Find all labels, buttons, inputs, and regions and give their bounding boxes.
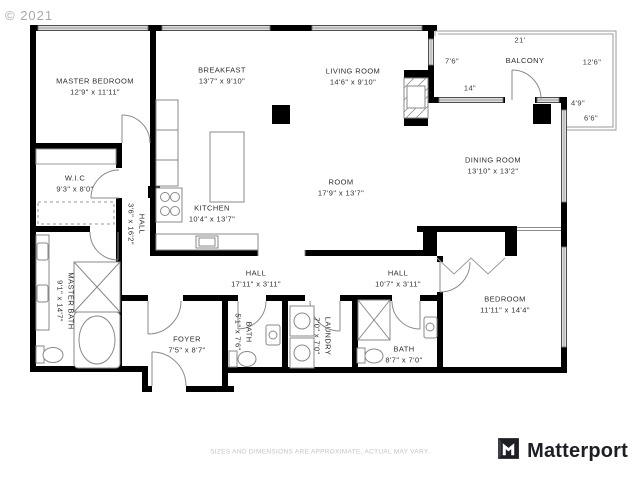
kitchen-island: [210, 132, 244, 202]
floorplan-page: MASTER BEDROOM12'9" x 11'11" BREAKFAST13…: [0, 0, 640, 480]
entry-door: [152, 352, 186, 386]
matterport-logo-icon: [496, 436, 521, 466]
room-label-foyer: FOYER7'5" x 8'7": [168, 335, 205, 356]
master-bath-fixtures: [36, 235, 120, 368]
room-label-master-bath: MASTER BATH9'1" x 14'7": [55, 272, 76, 329]
room-label-master-bedroom: MASTER BEDROOM12'9" x 11'11": [56, 77, 134, 98]
room-label-balcony: BALCONY: [506, 56, 545, 67]
matterport-logo-text: Matterport: [527, 440, 628, 463]
room-label-living-room: LIVING ROOM14'6" x 9'10": [326, 67, 380, 88]
copyright-watermark: © 2021: [5, 8, 53, 23]
laundry-fixtures: [290, 306, 314, 368]
column: [272, 105, 290, 124]
room-label-bedroom: BEDROOM11'11" x 14'4": [480, 295, 530, 316]
toilet-tank: [229, 351, 237, 367]
disclaimer-text: SIZES AND DIMENSIONS ARE APPROXIMATE, AC…: [210, 449, 430, 456]
room-label-kitchen: KITCHEN10'4" x 13'7": [189, 204, 235, 225]
dim-balcony-window: 14": [464, 84, 476, 93]
kitchen-counter: [156, 100, 178, 186]
kitchen-fixtures: [156, 100, 258, 250]
room-label-hall-east: HALL10'7" x 3'11": [375, 269, 421, 290]
wic-door: [91, 170, 119, 198]
toilet: [365, 349, 383, 363]
room-label-laundry: LAUNDRY7'0" x 7'0": [312, 317, 333, 356]
room-label-dining-room: DINING ROOM13'10" x 13'2": [465, 156, 521, 177]
sink: [37, 243, 48, 260]
room-label-bath2: BATH8'7" x 7'0": [385, 345, 422, 366]
closet-bifold-doors: [437, 258, 505, 274]
balcony-door: [512, 70, 541, 100]
room-label-room: ROOM17'9" x 13'7": [318, 178, 364, 199]
room-label-wic: W.I.C9'3" x 8'0": [56, 174, 93, 195]
balcony-door-gap: [505, 97, 535, 104]
floorplan-drawing: [0, 0, 640, 480]
master-bedroom-door: [122, 115, 150, 143]
matterport-logo: Matterport: [496, 436, 628, 466]
dim-balcony-top: 21': [515, 36, 526, 45]
sink: [37, 285, 48, 302]
fireplace: [404, 70, 428, 126]
dim-balcony-right: 12'6": [583, 58, 602, 67]
bedroom-door: [440, 262, 470, 292]
dim-balcony-left: 7'6": [445, 57, 459, 66]
foyer-door: [148, 301, 181, 334]
column: [533, 104, 551, 124]
room-label-hall-center: HALL17'11" x 3'11": [231, 269, 281, 290]
room-label-hall-west: HALL3'6" x 16'2": [126, 203, 147, 245]
dim-balcony-side-b: 6'6": [584, 114, 598, 123]
bath2-door: [392, 301, 420, 329]
room-label-breakfast: BREAKFAST13'7" x 9'10": [198, 66, 246, 87]
dim-balcony-side-a: 4'9": [571, 99, 585, 108]
room-label-bath-small: BATH5'1" x 7'6": [233, 313, 254, 350]
toilet-tank: [357, 348, 365, 363]
toilet: [238, 352, 256, 367]
master-bath-door: [90, 232, 118, 260]
toilet: [43, 348, 63, 363]
